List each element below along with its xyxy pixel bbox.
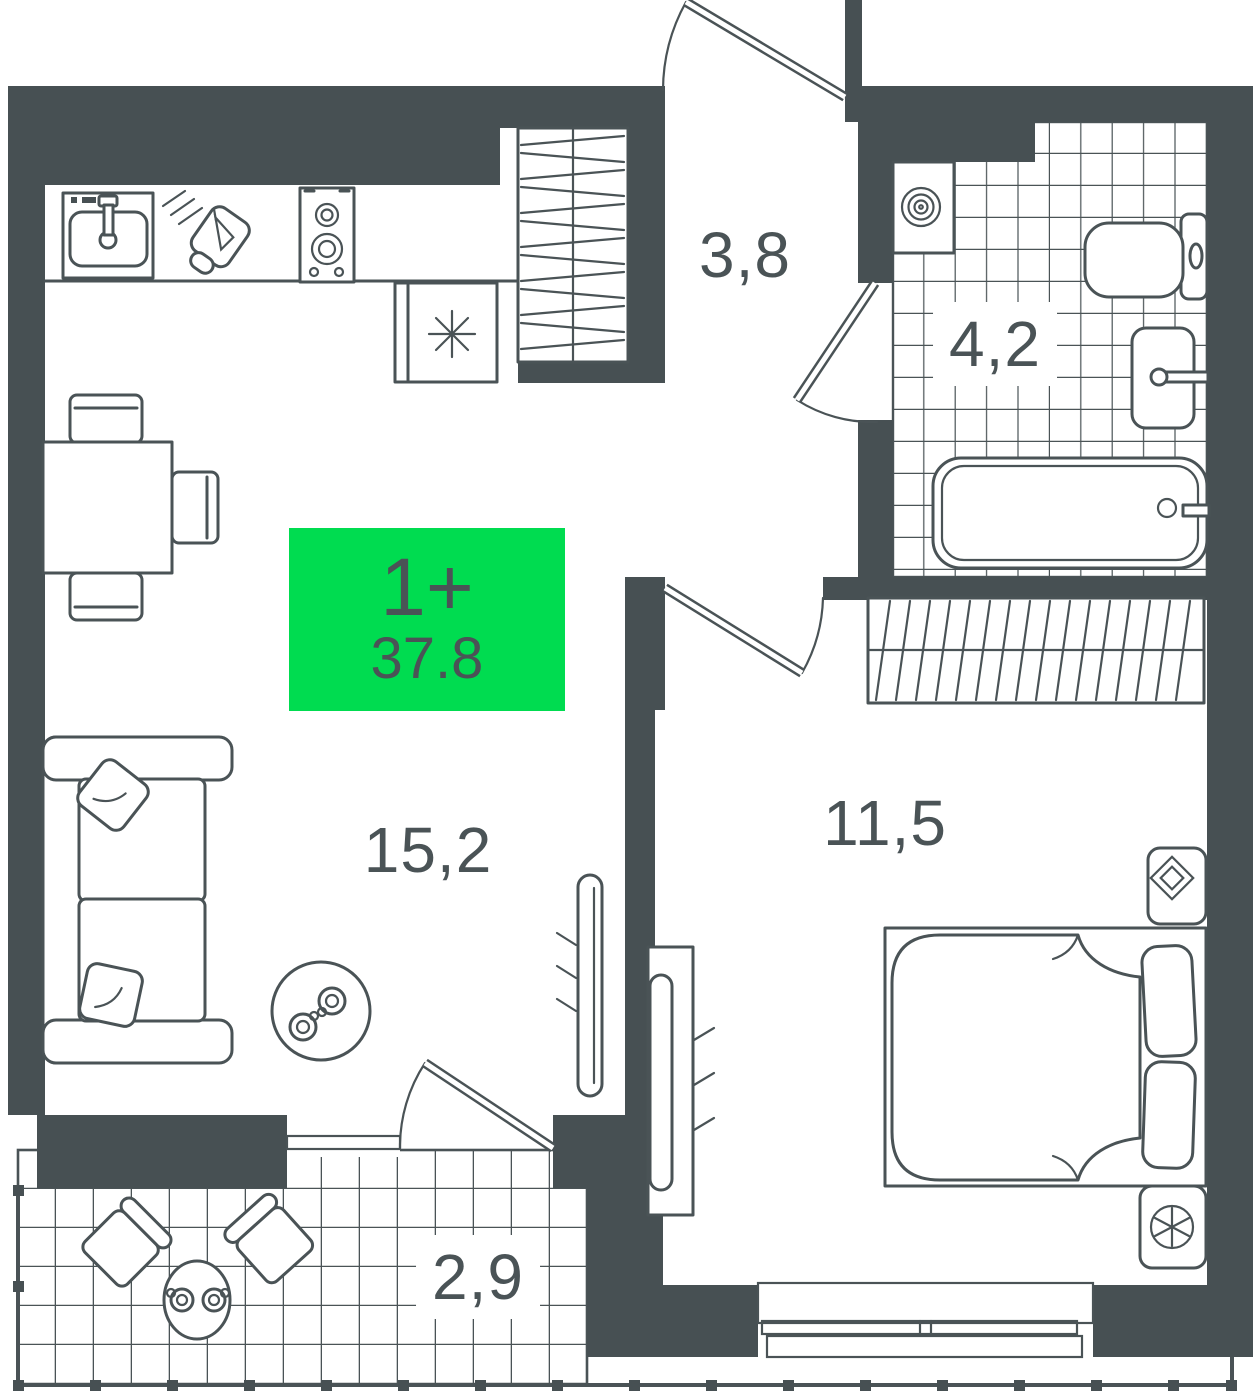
apartment-badge: 1+ 37.8	[289, 528, 565, 711]
apartment-type-label: 1+	[380, 551, 474, 625]
coffee-table-icon	[272, 962, 370, 1060]
hallway-area-label: 3,8	[699, 223, 791, 287]
hall-closet-icon	[518, 128, 628, 362]
balcony-door-swing-icon	[400, 1063, 553, 1148]
bed-icon	[885, 928, 1206, 1186]
dining-set	[43, 395, 218, 620]
apartment-total-area-label: 37.8	[371, 630, 484, 688]
bedroom-area-label: 11,5	[823, 791, 947, 855]
window-icon	[758, 1283, 1093, 1357]
chair-icon	[70, 573, 142, 620]
balcony-area-label: 2,9	[416, 1235, 540, 1319]
entrance-door-swing-icon	[663, 2, 845, 97]
bedroom-door-swing-icon	[665, 588, 823, 673]
nightstand-icon	[1148, 848, 1206, 924]
floor-plan-svg	[0, 0, 1253, 1400]
living-area-label: 15,2	[364, 818, 493, 882]
pillow-icon	[1141, 945, 1197, 1057]
floor-plan: 3,8 4,2 15,2 11,5 2,9 1+ 37.8	[0, 0, 1253, 1400]
kitchen-sink-icon	[63, 193, 153, 278]
toilet-icon	[1085, 214, 1207, 299]
chair-icon	[70, 395, 142, 443]
bathroom-area-label: 4,2	[933, 302, 1057, 386]
nightstand-icon	[1140, 1186, 1206, 1268]
chair-icon	[172, 472, 218, 543]
balcony-table-icon	[164, 1261, 230, 1339]
dining-table-icon	[43, 442, 172, 573]
radiator-icon	[557, 875, 602, 1096]
washing-machine-icon	[893, 162, 954, 253]
stove-icon	[300, 188, 354, 282]
radiator-icon	[648, 947, 714, 1215]
window-icon	[287, 1115, 400, 1157]
pillow-icon	[1142, 1061, 1196, 1169]
bathtub-icon	[933, 458, 1209, 568]
fridge-snowflake-icon	[395, 283, 497, 382]
wardrobe-icon	[868, 598, 1204, 703]
sofa-icon	[43, 737, 232, 1063]
bathroom-door-swing-icon	[797, 283, 877, 422]
